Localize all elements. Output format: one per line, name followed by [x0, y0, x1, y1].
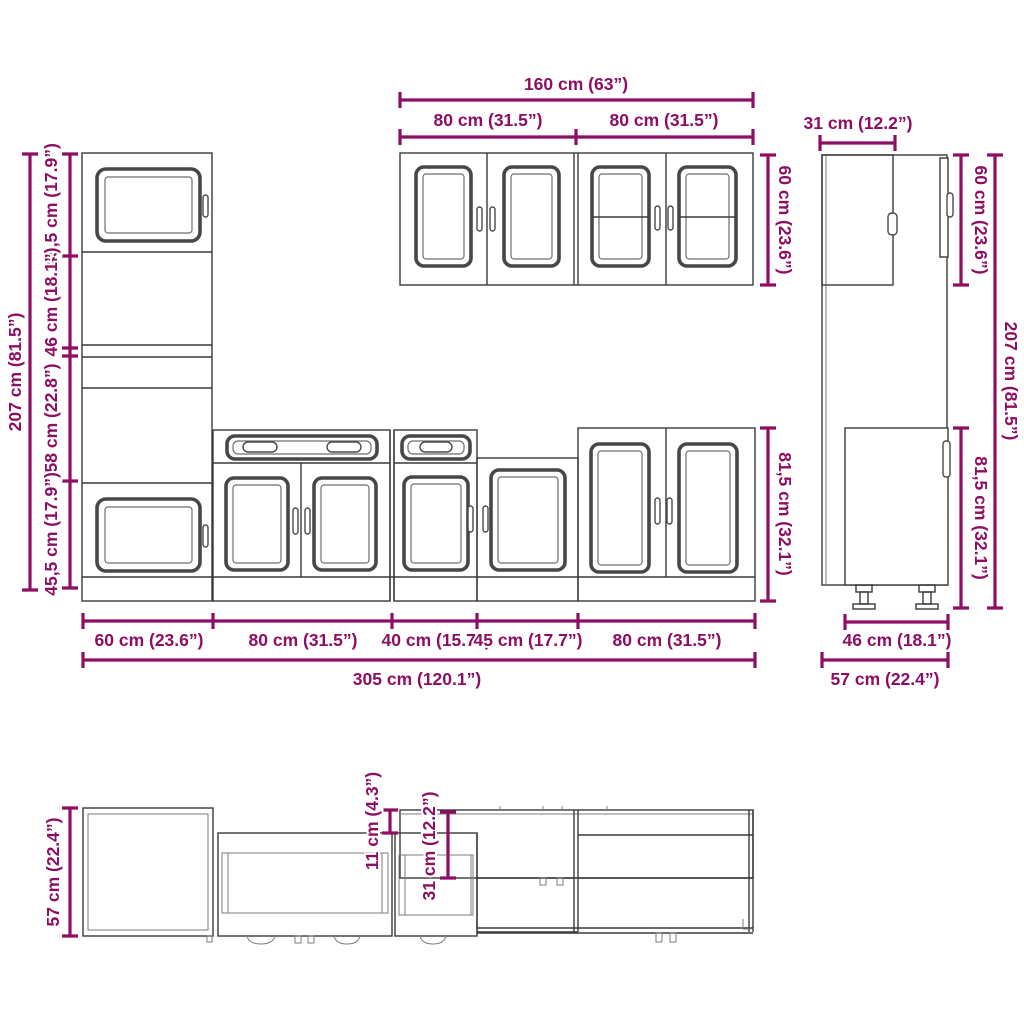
kitchen-dimension-diagram: 160 cm (63”) 80 cm (31.5”) 80 cm (31.5”)…: [0, 0, 1024, 1024]
dimension-diagram-page: 160 cm (63”) 80 cm (31.5”) 80 cm (31.5”)…: [0, 0, 1024, 1024]
label-top-view-offset: 11 cm (4.3”): [362, 772, 382, 870]
label-side-total-depth: 57 cm (22.4”): [831, 669, 940, 689]
side-view: [822, 155, 953, 609]
label-tall-total-height: 207 cm (81.5”): [5, 313, 25, 432]
side-view-feet: [853, 585, 938, 609]
label-tall-segment-4: 45,5 cm (17.9”): [41, 472, 61, 596]
label-side-base-depth: 46 cm (18.1”): [843, 630, 952, 650]
front-view-wall-cabinets: [400, 153, 753, 285]
front-view-base-cabinets: [82, 428, 755, 601]
label-wall-right-width: 80 cm (31.5”): [610, 110, 719, 130]
label-top-view-wall-depth: 31 cm (12.2”): [419, 792, 439, 901]
label-side-total-height: 207 cm (81.5”): [1001, 322, 1021, 441]
label-tall-segment-2: 46 cm (18.1”): [41, 248, 61, 357]
label-top-view-depth: 57 cm (22.4”): [43, 818, 63, 927]
label-base-width-5: 80 cm (31.5”): [613, 630, 722, 650]
front-view-tall-cabinet: [82, 153, 212, 601]
label-wall-height: 60 cm (23.6”): [775, 166, 795, 275]
label-wall-left-width: 80 cm (31.5”): [434, 110, 543, 130]
label-wall-total-width: 160 cm (63”): [524, 74, 628, 94]
label-base-width-2: 80 cm (31.5”): [249, 630, 358, 650]
label-base-width-4: 45 cm (17.7”): [474, 630, 583, 650]
label-total-width: 305 cm (120.1”): [353, 669, 481, 689]
label-side-top-depth: 31 cm (12.2”): [804, 113, 913, 133]
label-base-width-1: 60 cm (23.6”): [95, 630, 204, 650]
label-base-run-height: 81,5 cm (32.1”): [775, 452, 795, 576]
top-view: [83, 806, 753, 944]
label-side-upper-height: 60 cm (23.6”): [971, 166, 991, 275]
label-side-base-height: 81,5 cm (32.1”): [971, 456, 991, 580]
label-tall-segment-3: 58 cm (22.8”): [41, 364, 61, 473]
